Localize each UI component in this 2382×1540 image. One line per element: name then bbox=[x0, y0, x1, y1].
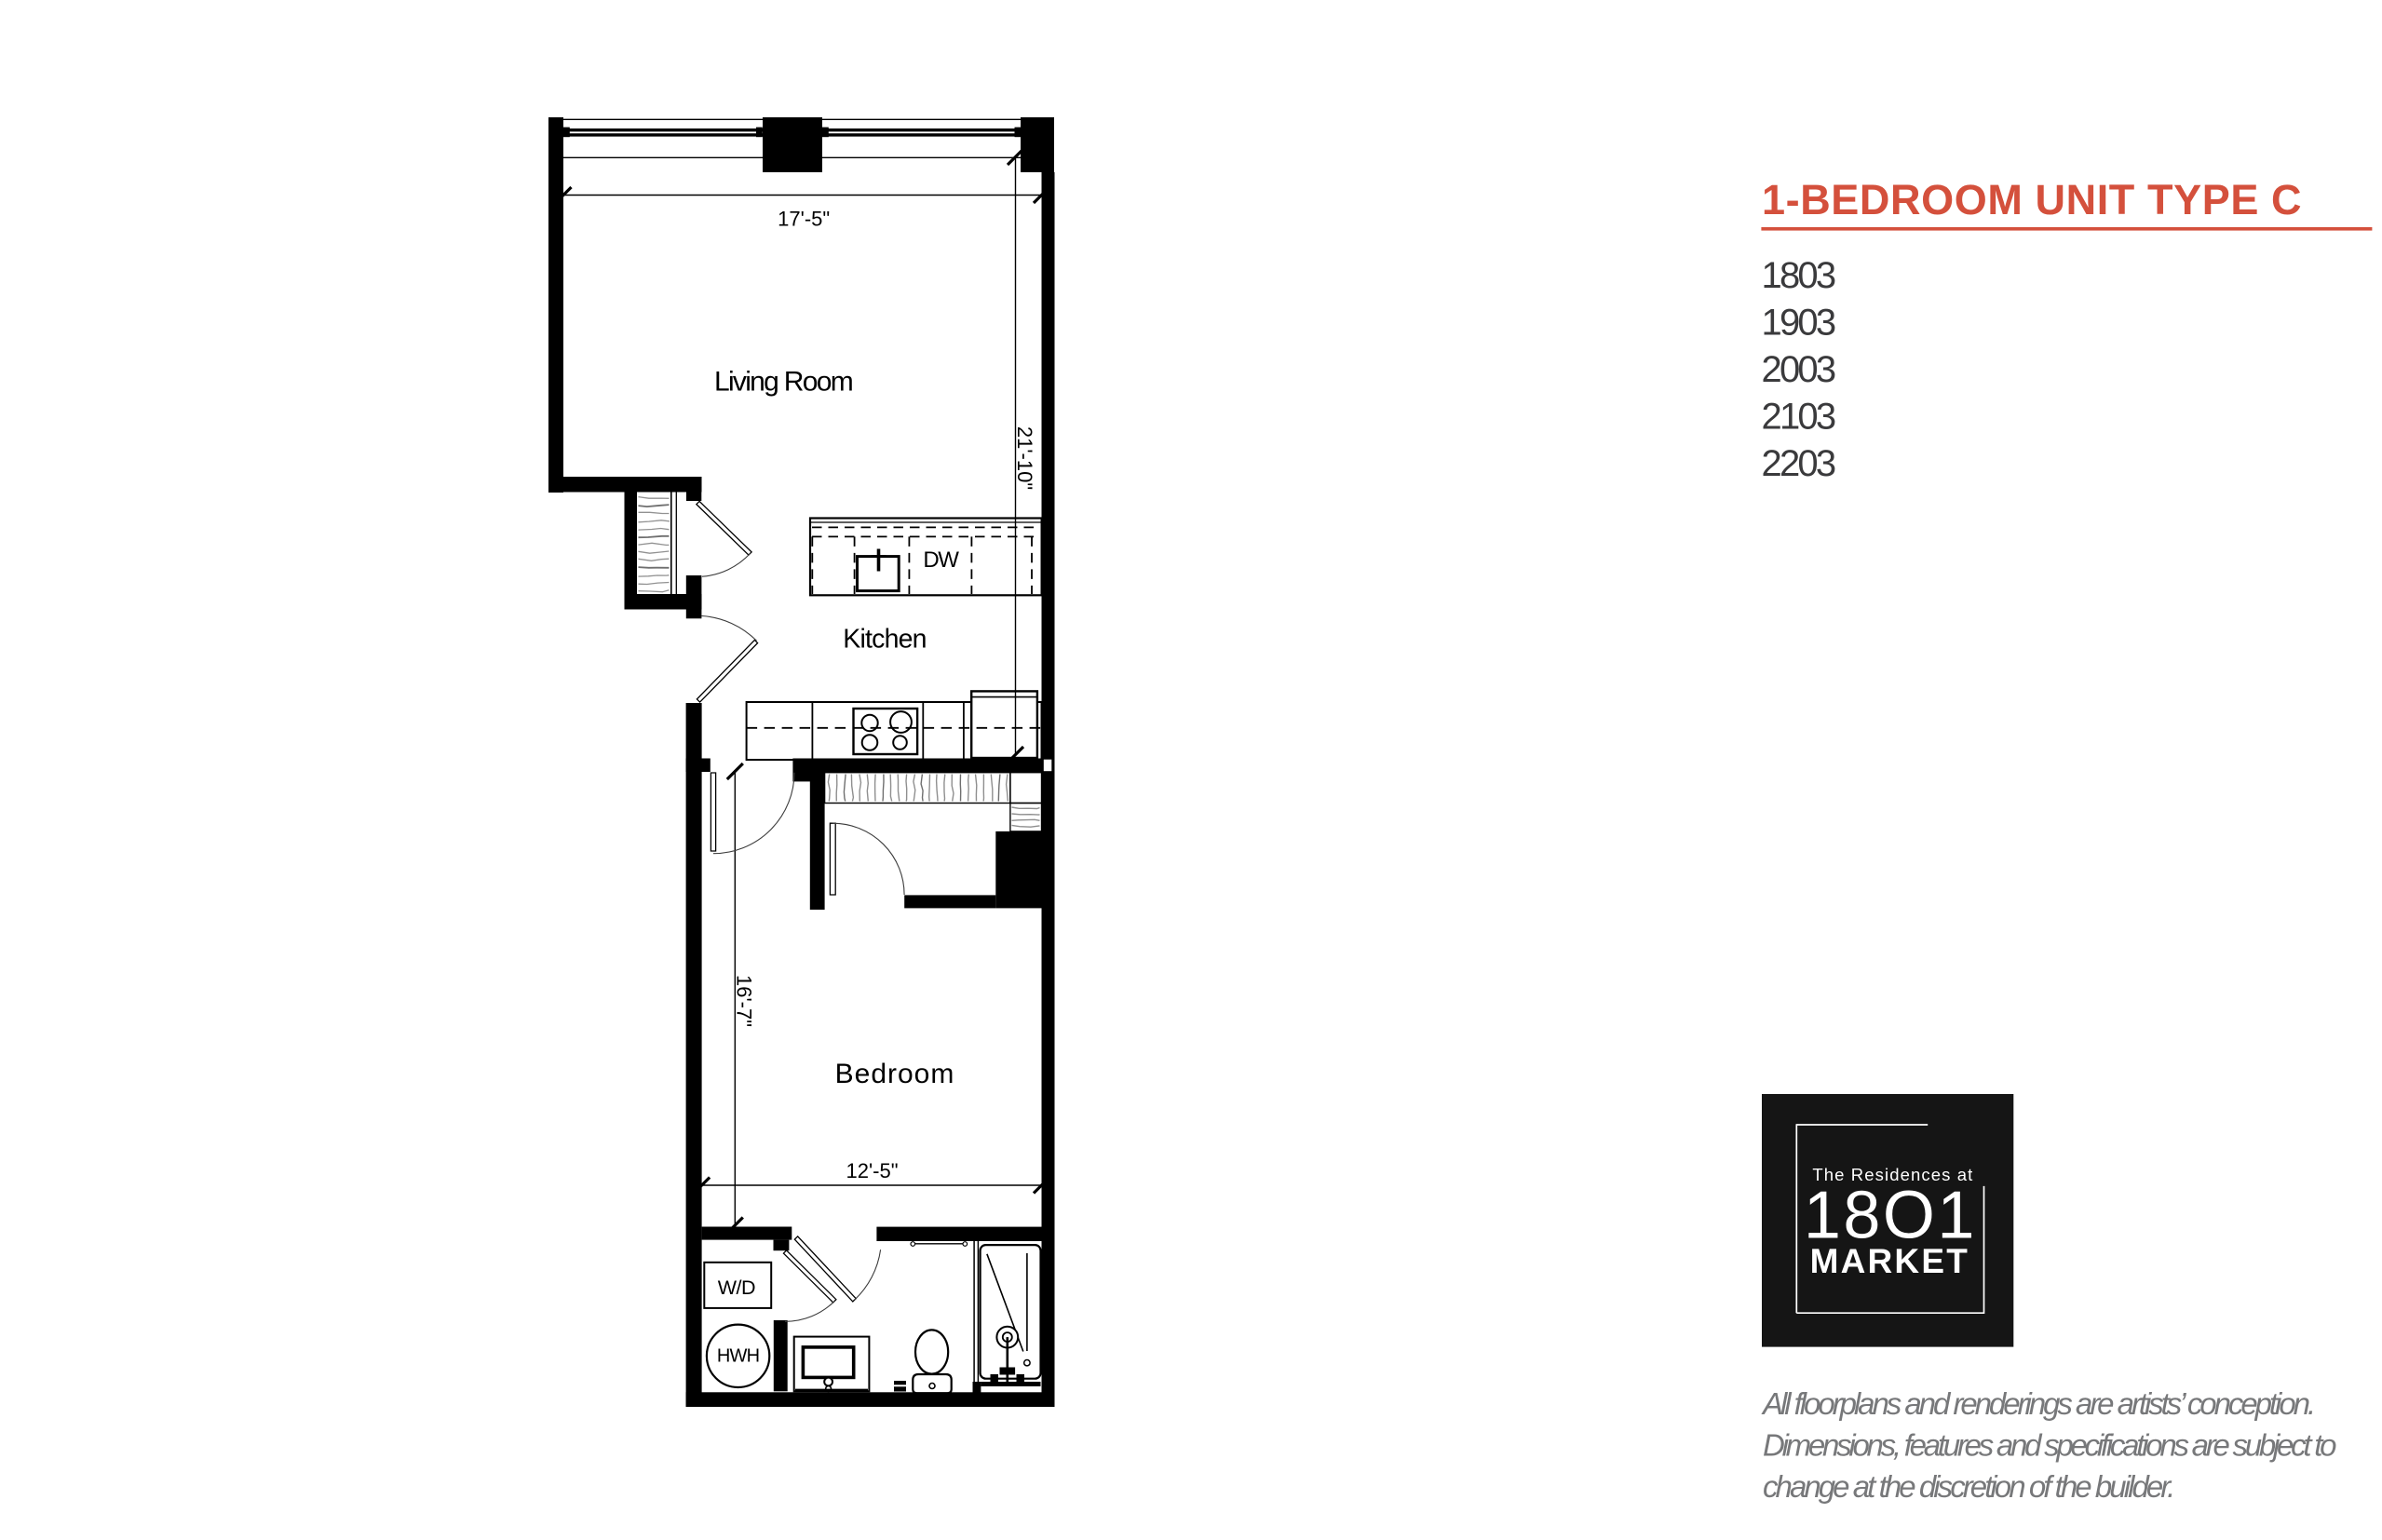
svg-text:1803: 1803 bbox=[1762, 255, 1835, 296]
svg-text:12'-5": 12'-5" bbox=[846, 1159, 898, 1182]
svg-text:1-BEDROOM UNIT TYPE C: 1-BEDROOM UNIT TYPE C bbox=[1762, 176, 2302, 223]
svg-text:16'-7": 16'-7" bbox=[733, 975, 756, 1027]
svg-text:DW: DW bbox=[923, 547, 959, 573]
svg-text:Bedroom: Bedroom bbox=[835, 1059, 955, 1089]
svg-text:2003: 2003 bbox=[1762, 349, 1835, 390]
svg-text:2103: 2103 bbox=[1762, 396, 1835, 437]
svg-text:17'-5": 17'-5" bbox=[778, 207, 830, 230]
svg-text:Kitchen: Kitchen bbox=[843, 625, 926, 655]
svg-text:2203: 2203 bbox=[1762, 443, 1835, 484]
svg-text:All floorplans and renderings: All floorplans and renderings are artist… bbox=[1761, 1386, 2313, 1421]
svg-text:Living Room: Living Room bbox=[714, 367, 853, 398]
svg-text:W/D: W/D bbox=[718, 1277, 755, 1299]
svg-text:MARKET: MARKET bbox=[1810, 1242, 1969, 1280]
svg-text:1903: 1903 bbox=[1762, 302, 1835, 343]
svg-text:Dimensions, features and speci: Dimensions, features and specifications … bbox=[1763, 1428, 2336, 1463]
svg-text:21'-10": 21'-10" bbox=[1013, 426, 1036, 490]
svg-text:change at the discretion of th: change at the discretion of the builder. bbox=[1763, 1469, 2172, 1504]
svg-text:HWH: HWH bbox=[717, 1346, 759, 1367]
